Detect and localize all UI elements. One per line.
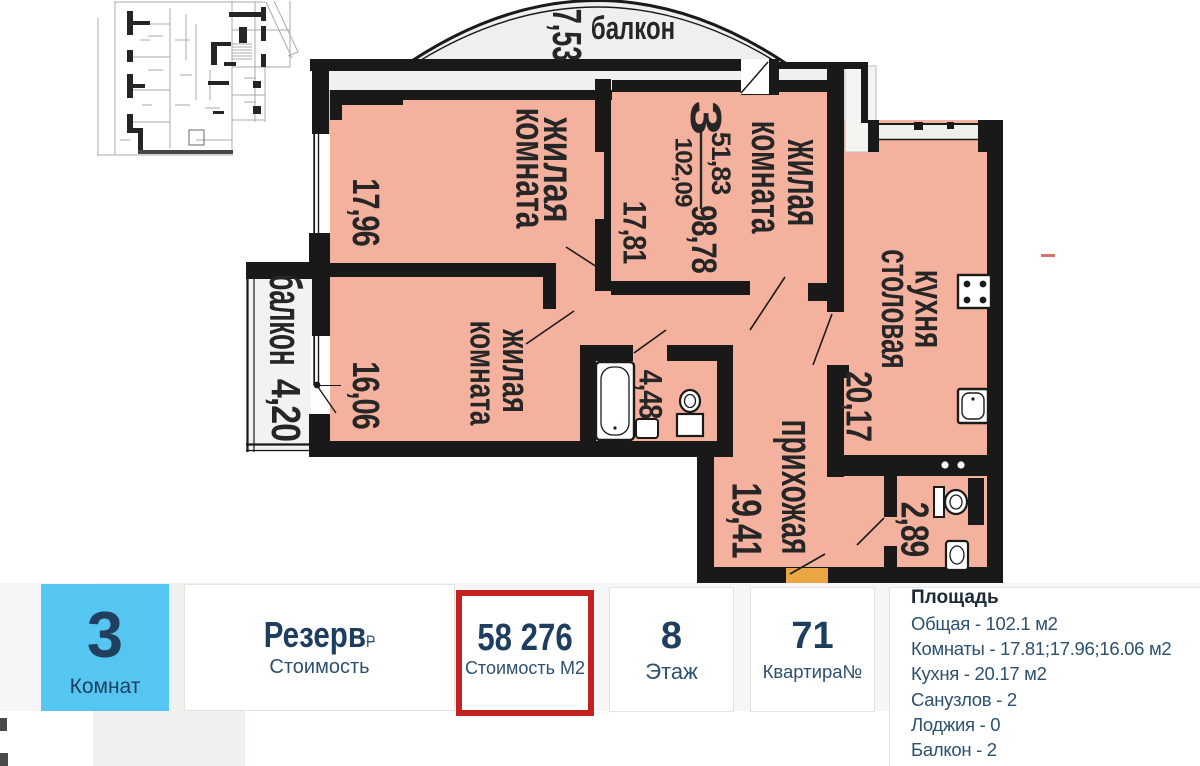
svg-text:прихожая: прихожая — [773, 420, 822, 555]
svg-text:98,78: 98,78 — [684, 205, 723, 273]
svg-text:столовая: столовая — [872, 249, 917, 368]
svg-text:4,20: 4,20 — [263, 379, 309, 441]
svg-text:4,48: 4,48 — [632, 370, 668, 419]
svg-text:7,53: 7,53 — [544, 9, 589, 62]
svg-text:51,83: 51,83 — [706, 132, 736, 196]
svg-text:балкон: балкон — [591, 11, 675, 47]
svg-text:17,81: 17,81 — [616, 201, 652, 264]
svg-text:102,09: 102,09 — [670, 138, 697, 207]
svg-text:3: 3 — [681, 101, 729, 135]
svg-text:балкон: балкон — [260, 274, 312, 365]
svg-text:комната: комната — [507, 108, 552, 230]
svg-text:комната: комната — [462, 321, 503, 426]
svg-text:комната: комната — [742, 121, 789, 235]
svg-text:17,96: 17,96 — [344, 178, 385, 246]
svg-text:20,17: 20,17 — [838, 371, 878, 441]
svg-text:19,41: 19,41 — [723, 482, 770, 558]
svg-text:2,89: 2,89 — [893, 502, 936, 557]
svg-text:16,06: 16,06 — [344, 361, 385, 429]
